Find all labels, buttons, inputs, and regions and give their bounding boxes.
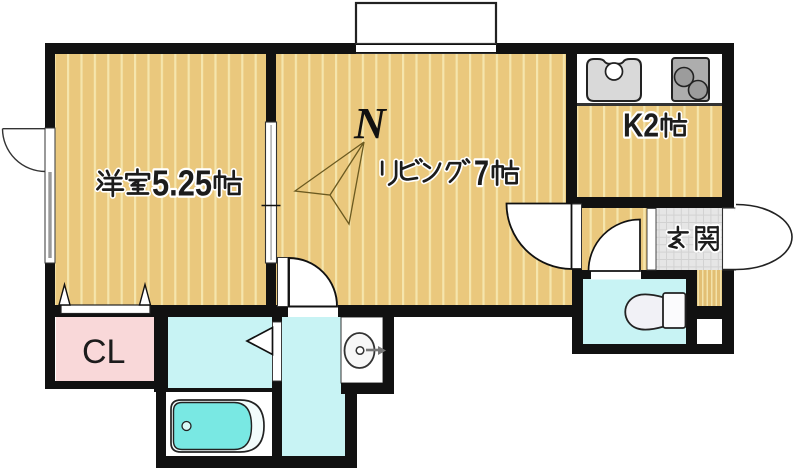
svg-text:7: 7 xyxy=(474,154,489,193)
svg-text:CL: CL xyxy=(82,333,125,371)
svg-text:N: N xyxy=(353,99,388,148)
svg-text:5.25: 5.25 xyxy=(152,163,212,204)
svg-text:K2: K2 xyxy=(623,107,659,144)
